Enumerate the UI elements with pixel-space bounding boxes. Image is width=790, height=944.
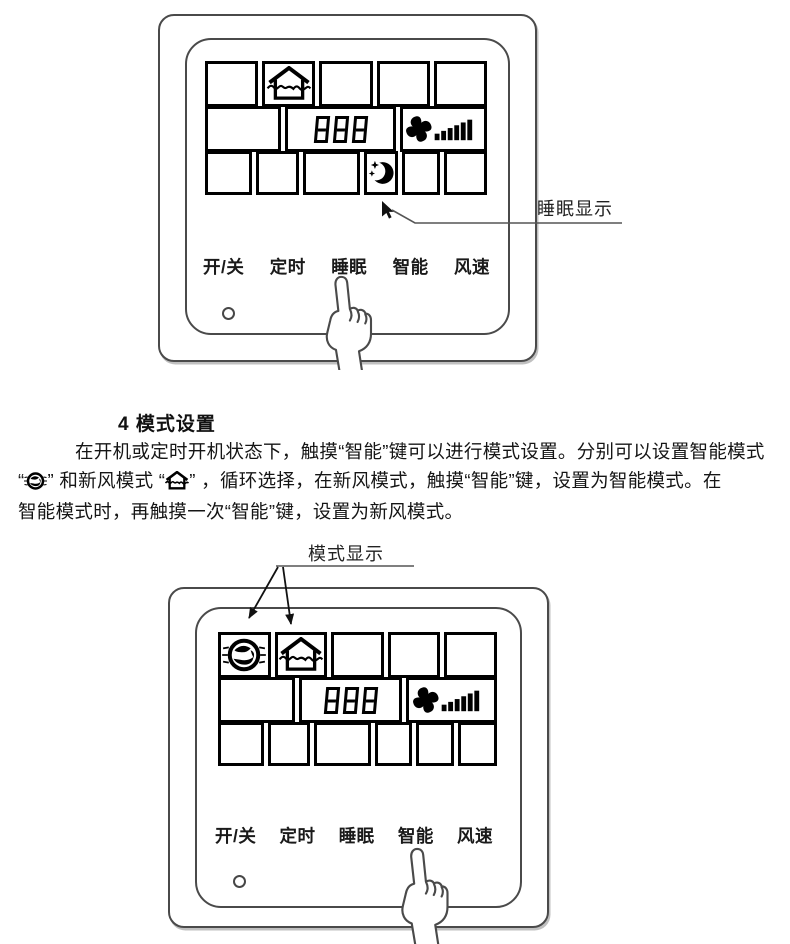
manual-page: 开/关 定时 睡眠 智能 风速 睡眠显示 4 模式设置 在开机或定时开机状态下，… — [0, 0, 790, 944]
temperature-digits-segment — [285, 106, 396, 152]
indicator-led — [233, 875, 246, 888]
key-timer[interactable]: 定时 — [280, 823, 316, 848]
lcd-segment-empty — [331, 632, 384, 678]
lcd-segment-empty — [375, 722, 411, 766]
house-airflow-icon — [266, 66, 312, 103]
pointing-hand-icon — [391, 846, 455, 944]
fan-speed-segment — [406, 677, 497, 723]
lcd-segment-empty — [434, 61, 487, 107]
seven-segment-digits — [323, 687, 377, 714]
key-fanspeed[interactable]: 风速 — [454, 254, 490, 279]
mode-display-label: 模式显示 — [308, 540, 384, 566]
sleep-mode-segment — [364, 151, 398, 195]
key-sleep[interactable]: 睡眠 — [339, 823, 375, 848]
fresh-air-mode-segment — [275, 632, 328, 678]
lcd-segment-empty — [314, 722, 371, 766]
smart-mode-icon — [24, 471, 47, 491]
lcd-display-top — [205, 61, 487, 195]
lcd-segment-empty — [205, 61, 258, 107]
moon-stars-icon — [368, 158, 394, 188]
lcd-segment-empty — [218, 677, 295, 723]
lcd-segment-empty — [303, 151, 360, 195]
temperature-digits-segment — [299, 677, 401, 723]
sleep-display-label: 睡眠显示 — [537, 195, 613, 221]
lcd-segment-empty — [218, 722, 264, 766]
seven-segment-digits — [314, 116, 368, 143]
section-heading: 4 模式设置 — [118, 409, 216, 436]
fan-speed-segment — [400, 106, 487, 152]
key-power[interactable]: 开/关 — [203, 254, 244, 279]
fresh-air-mode-segment — [262, 61, 315, 107]
instruction-line-2: “” 和新风模式 “” ，循环选择，在新风模式，触摸“智能”键，设置为智能模式。… — [18, 469, 722, 493]
fan-speed-bars-icon — [413, 686, 489, 714]
lcd-display-bottom — [218, 632, 497, 766]
lcd-segment-empty — [377, 61, 430, 107]
smart-mode-segment — [218, 632, 271, 678]
lcd-segment-empty — [444, 151, 487, 195]
instruction-line-3: 智能模式时，再触摸一次“智能”键，设置为新风模式。 — [18, 500, 463, 524]
lcd-segment-empty — [402, 151, 440, 195]
key-smart[interactable]: 智能 — [398, 823, 434, 848]
key-smart[interactable]: 智能 — [393, 254, 429, 279]
key-timer[interactable]: 定时 — [270, 254, 306, 279]
lcd-segment-empty — [256, 151, 298, 195]
smart-mode-icon — [222, 636, 266, 674]
lcd-segment-empty — [388, 632, 441, 678]
instruction-line-2-rest: ” ，循环选择，在新风模式，触摸“智能”键，设置为智能模式。在 — [189, 470, 721, 491]
key-power[interactable]: 开/关 — [215, 823, 256, 848]
lcd-segment-empty — [319, 61, 372, 107]
indicator-led — [222, 307, 235, 320]
house-airflow-icon — [165, 471, 189, 491]
lcd-segment-empty — [458, 722, 497, 766]
lcd-segment-empty — [416, 722, 454, 766]
key-fanspeed[interactable]: 风速 — [457, 823, 493, 848]
house-airflow-icon — [278, 637, 324, 674]
instruction-line-2-mid: ” 和新风模式 “ — [47, 470, 165, 491]
pointing-hand-icon — [315, 274, 379, 370]
lcd-segment-empty — [205, 106, 281, 152]
lcd-segment-empty — [268, 722, 310, 766]
fan-speed-bars-icon — [406, 115, 482, 143]
lcd-segment-empty — [444, 632, 497, 678]
touch-keys-bottom: 开/关 定时 睡眠 智能 风速 — [215, 823, 493, 848]
lcd-segment-empty — [205, 151, 252, 195]
instruction-line-1: 在开机或定时开机状态下，触摸“智能”键可以进行模式设置。分别可以设置智能模式 — [75, 440, 765, 464]
